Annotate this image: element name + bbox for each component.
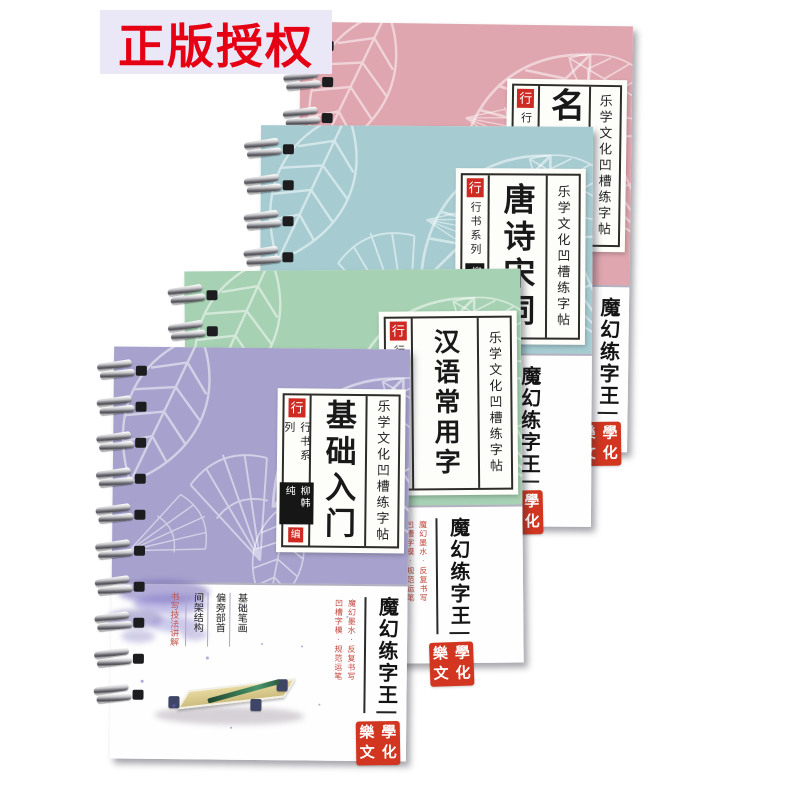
coil-wire — [97, 621, 133, 631]
product-name: 魔幻练字王 — [443, 517, 473, 627]
binding-coil — [96, 432, 152, 455]
binding-coil — [95, 504, 151, 527]
slogan-right: 魔幻墨水·反复书写 — [345, 599, 359, 681]
punch-hole — [133, 654, 144, 664]
punch-hole — [134, 546, 145, 556]
brand-tagline: 乐学文化凹槽练字帖 — [372, 399, 393, 543]
seal-character: 學 — [378, 723, 400, 743]
brand-seal: 樂學文化 — [356, 721, 401, 766]
punch-hole — [283, 180, 294, 190]
underline — [376, 711, 396, 713]
book-title: 汉语常用字 — [426, 328, 464, 478]
slogan-right: 魔幻墨水·反复书写 — [416, 520, 430, 602]
binding-coil — [243, 211, 299, 233]
seal-character: 文 — [356, 743, 378, 763]
brand-tagline: 乐学文化凹槽练字帖 — [485, 331, 505, 475]
punch-hole — [322, 113, 333, 123]
coil-wire — [100, 369, 136, 379]
binding-coil — [96, 468, 152, 491]
punch-hole — [134, 510, 145, 520]
title-column: 汉语常用字 — [413, 318, 478, 489]
seal-character: 化 — [599, 444, 621, 464]
coil-wire — [246, 219, 282, 230]
coil-wire — [246, 255, 282, 266]
contents-column: 间架结构 — [186, 592, 209, 646]
punch-hole — [207, 326, 218, 336]
brush-pen — [207, 679, 280, 703]
punch-hole — [283, 144, 294, 154]
binding-coil — [243, 247, 299, 269]
editor-tag: 编 — [288, 527, 303, 542]
series-tag: 行 — [517, 89, 534, 108]
punch-hole — [134, 582, 145, 592]
series-name: 行书系列 — [280, 421, 313, 477]
coil-wire — [98, 477, 134, 487]
seal-character: 化 — [452, 663, 475, 684]
punch-hole — [132, 690, 143, 700]
underline — [597, 412, 617, 414]
contents-highlight: 书写技法讲解 — [162, 592, 187, 646]
label-frame: 行 行书系列 柳韩纯 编 基础入门 乐学文化凹槽练字帖 — [281, 393, 401, 548]
paint-speck — [318, 704, 320, 706]
punch-hole — [136, 366, 147, 376]
coil-wire — [286, 80, 321, 90]
paint-speck — [301, 645, 303, 647]
punch-hole — [282, 252, 293, 262]
coil-wire — [246, 183, 282, 194]
scroll-knob — [168, 696, 179, 708]
brand-seal: 樂學文化 — [429, 641, 475, 687]
series-name: 行书系列 — [467, 201, 483, 257]
coil-wire — [97, 585, 133, 595]
coil-wire — [96, 693, 132, 703]
binding-coil — [244, 139, 300, 161]
binding-coil — [95, 540, 151, 563]
series-tag: 行 — [467, 178, 484, 197]
brand-tagline: 乐学文化凹槽练字帖 — [553, 185, 573, 329]
slogan-left: 凹槽字模·规范运笔 — [332, 599, 346, 681]
scroll-knob — [250, 699, 261, 711]
binding-coil — [244, 175, 300, 197]
punch-hole — [135, 438, 146, 448]
seal-character: 學 — [599, 424, 621, 444]
book-title: 基础入门 — [315, 399, 362, 543]
seal-character: 文 — [430, 664, 453, 685]
coil-wire — [99, 441, 135, 451]
coil-wire — [98, 549, 134, 559]
coil-wire — [171, 329, 207, 340]
binding-coil — [95, 576, 151, 599]
product-name: 魔幻练字王 — [371, 596, 401, 706]
bottom-band: 基础笔画偏旁部首间架结构书写技法讲解 魔幻墨水·反复书写 凹槽字模·规范运笔 魔… — [110, 581, 408, 761]
series-column: 行 行书系列 柳韩纯 编 — [283, 395, 312, 545]
scroll-knob — [277, 679, 288, 691]
product-name-block: 魔幻墨水·反复书写 凹槽字模·规范运笔 魔幻练字王 樂學文化 — [331, 596, 402, 766]
series-tag: 行 — [390, 322, 407, 341]
authenticity-badge: 正版授权 — [100, 10, 332, 74]
punch-hole — [206, 290, 217, 300]
contents-list: 基础笔画偏旁部首间架结构书写技法讲解 — [162, 592, 252, 647]
binding-coil — [97, 360, 153, 383]
contents-column: 偏旁部首 — [208, 592, 231, 646]
punch-hole — [135, 402, 146, 412]
paint-speck — [230, 727, 232, 729]
coil-wire — [247, 147, 283, 158]
binding-coil — [167, 285, 223, 307]
binding-coil — [93, 684, 149, 707]
seal-character: 學 — [521, 492, 543, 512]
punch-hole — [133, 618, 144, 628]
product-name: 魔幻练字王 — [593, 297, 624, 407]
tagline-column: 乐学文化凹槽练字帖 — [477, 318, 511, 488]
cover-label: 行 行书系列 柳韩纯 编 基础入门 乐学文化凹槽练字帖 — [276, 388, 406, 553]
underline — [449, 632, 469, 634]
seal-character: 樂 — [356, 723, 378, 743]
divider-line — [363, 597, 366, 713]
title-column: 基础入门 — [310, 396, 366, 547]
tagline-column: 乐学文化凹槽练字帖 — [545, 176, 579, 338]
seal-character: 樂 — [429, 644, 452, 665]
binding-coil — [94, 612, 150, 635]
binding-coil — [168, 321, 224, 343]
spiral-binding — [93, 360, 153, 721]
divider-line — [435, 518, 438, 634]
punch-hole — [135, 474, 146, 484]
slogan-text: 魔幻墨水·反复书写 凹槽字模·规范运笔 — [332, 599, 359, 681]
seal-character: 學 — [451, 643, 474, 664]
punch-hole — [283, 216, 294, 226]
coil-wire — [97, 657, 133, 667]
contents-column: 基础笔画 — [230, 593, 252, 647]
coil-wire — [99, 405, 135, 415]
scroll-mat — [177, 678, 296, 709]
practice-book: 行 行书系列 柳韩纯 编 基础入门 乐学文化凹槽练字帖 基础笔画偏旁部首间架结构… — [110, 346, 410, 761]
seal-character: 化 — [378, 743, 400, 763]
brand-tagline: 乐学文化凹槽练字帖 — [594, 94, 615, 238]
paint-speck — [172, 704, 175, 707]
author-name: 柳韩纯 — [279, 483, 313, 525]
authenticity-badge-text: 正版授权 — [118, 8, 314, 77]
product-name-block: 魔幻墨水·反复书写 凹槽字模·规范运笔 魔幻练字王 樂學文化 — [403, 517, 473, 687]
punch-hole — [322, 77, 333, 87]
tagline-column: 乐学文化凹槽练字帖 — [364, 396, 399, 546]
series-tag: 行 — [288, 398, 305, 417]
paint-speck — [261, 643, 263, 645]
ink-wash — [154, 706, 304, 726]
coil-wire — [170, 293, 206, 304]
binding-coil — [94, 648, 150, 671]
seal-character: 化 — [521, 512, 543, 532]
coil-wire — [98, 513, 134, 523]
binding-coil — [96, 396, 152, 419]
product-photo: 正版授权 行 行书系列 柳韩纯 编 名家散文 乐学文化凹槽练字帖 — [0, 0, 800, 800]
book-cover: 行 行书系列 柳韩纯 编 基础入门 乐学文化凹槽练字帖 — [112, 346, 410, 586]
paint-speck — [206, 656, 209, 659]
